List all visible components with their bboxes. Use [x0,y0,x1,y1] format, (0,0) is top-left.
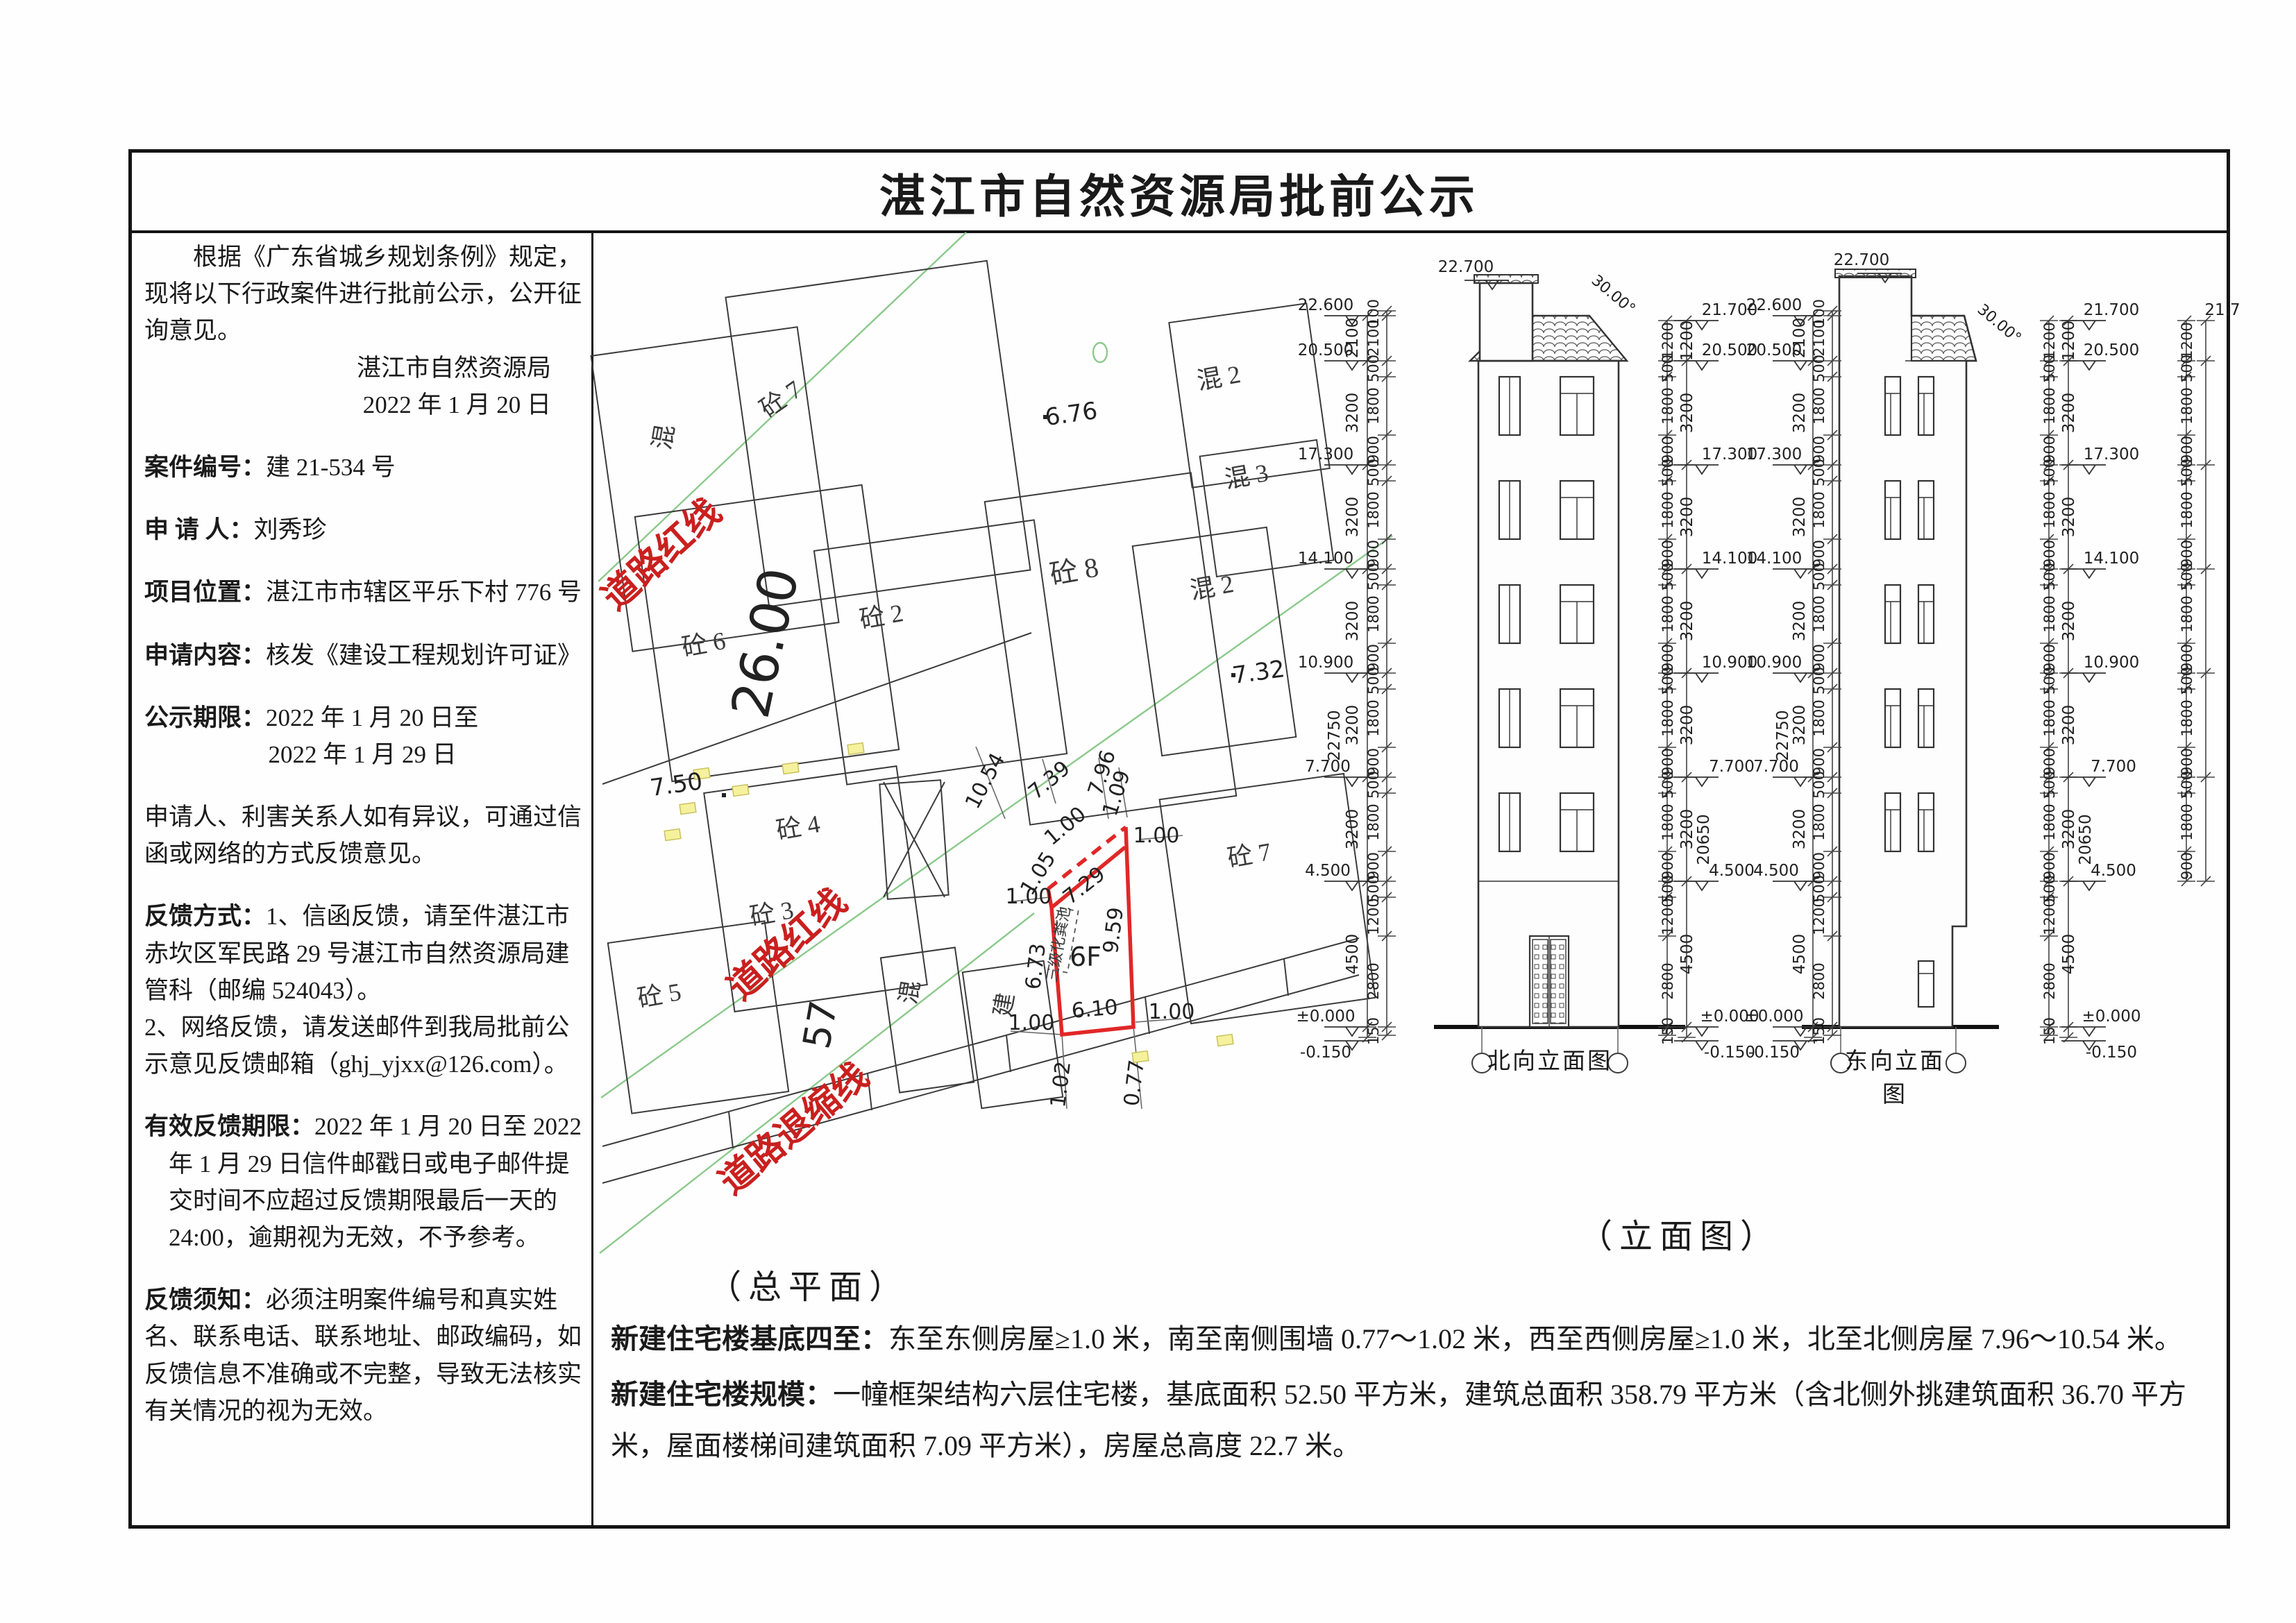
drawing-text: 4500 [1678,934,1696,975]
drawing-text: 4500 [1344,934,1362,975]
drawing-text: 2100 [1791,318,1809,359]
drawing-text: 7.32 [1231,655,1287,690]
site-plan-caption: （总平面） [708,1259,902,1308]
drawing-text: 2800 [1365,962,1382,999]
window [1918,585,1934,643]
drawing-text: 10.900 [1746,654,1802,672]
drawing-text: 3200 [2060,705,2078,746]
drawing-text: 500 [1660,667,1676,695]
north-stair-bulkhead [1480,283,1533,361]
drawing-text: 1800 [1365,804,1382,840]
drawing-text: 7.39 [1024,756,1075,805]
drawing-text: 2800 [2041,962,2058,999]
drawing-text: 砼 5 [635,978,683,1012]
drawing-text: 500 [1365,771,1382,799]
east-elevation-caption: 东向立面图 [1837,1042,1953,1109]
drawing-text: 500 [2041,459,2058,486]
drawing-text: 30.00° [1588,272,1639,318]
drawing-text: 1800 [1811,699,1827,736]
drawing-text: 150 [1365,1017,1382,1045]
lamp-marker [732,785,749,797]
drawing-text: 21.7 [2204,301,2240,319]
drawing-text: 1200 [1365,898,1382,935]
footprint-label: 新建住宅楼基底四至： [611,1323,888,1354]
drawing-text: 混 [895,978,925,1006]
drawing-text: 3200 [2060,393,2078,434]
drawing-text: 7.700 [2091,758,2136,776]
drawing-text: 500 [2041,667,2058,695]
drawing-text: 1800 [1811,491,1827,528]
drawing-text: 3200 [1791,497,1809,538]
drawing-text: 3200 [1678,705,1696,746]
level-marker [1324,777,1369,786]
notice-sheet: 湛江市自然资源局批前公示 根据《广东省城乡规划条例》规定，现将以下行政案件进行批… [0,0,2296,1623]
drawing-text: 500 [1365,355,1382,382]
drawing-text: 26.00 [719,563,811,723]
drawing-text: 17.300 [1746,445,1802,464]
lamp-marker [664,829,681,841]
site-plan-linework [598,232,1392,1253]
drawing-text: 500 [2179,563,2195,590]
drawing-text: 砼 7 [755,375,807,423]
spot-dot [722,793,726,797]
drawing-text: 1800 [1660,804,1676,840]
drawing-text: 3200 [2060,601,2078,642]
drawing-text: 900 [2179,852,2195,880]
drawing-text: 1200 [2041,898,2058,935]
drawing-text: 砼 4 [774,810,822,844]
drawing-text: 500 [2179,667,2195,695]
drawing-text: 砼 2 [857,599,905,634]
drawing-text: 1200 [1660,322,1676,359]
window [1885,377,1900,435]
north-elevation [1434,275,1685,1073]
drawing-text: 1800 [2041,804,2058,840]
drawing-text: 2800 [1660,962,1676,999]
drawing-text: 14.100 [1746,550,1802,568]
footprint-text: 东至东侧房屋≥1.0 米，南至南侧围墙 0.77～1.02 米，西至西侧房屋≥1… [888,1323,2182,1354]
drawing-text: 1800 [2179,595,2195,632]
drawing-text: 14.100 [1298,550,1353,568]
drawing-text: 500 [2041,771,2058,799]
drawing-text: 4500 [1791,934,1809,975]
drawing-text: 500 [1811,459,1827,486]
lamp-marker [847,743,864,755]
window [1885,793,1900,851]
level-marker [1324,465,1369,474]
window [1918,481,1934,539]
window [1918,689,1934,747]
lamp-marker [679,803,696,815]
drawing-text: 1800 [2041,699,2058,736]
drawing-text: 3200 [1344,705,1362,746]
drawing-text: 1.00 [1040,802,1091,851]
drawing-text: 1800 [1811,804,1827,840]
drawing-text: 4500 [2060,934,2078,975]
drawing-text: 混 2 [1195,360,1242,395]
drawing-text: 3200 [1344,393,1362,434]
plan-line [1284,959,1288,996]
drawing-text: 3200 [1791,809,1809,850]
level-marker [1324,569,1369,578]
drawing-text: 1800 [1660,387,1676,424]
drawing-text: 1800 [1365,699,1382,736]
bottom-notes: 新建住宅楼基底四至：东至东侧房屋≥1.0 米，南至南侧围墙 0.77～1.02 … [611,1314,2215,1472]
drawing-text: 22750 [1326,710,1344,760]
drawing-text: 10.900 [2084,654,2139,672]
level-marker [1674,777,1719,786]
window [1918,961,1934,1007]
drawing-text: 150 [2041,1017,2058,1045]
drawing-text: 0.77 [1120,1059,1149,1108]
elevation-caption: （立面图） [1576,1209,1784,1257]
drawing-text: 500 [2179,459,2195,486]
drawing-text: 17.300 [2084,445,2139,464]
drawing-text: 3200 [1678,809,1696,850]
drawing-text: 1800 [1660,699,1676,736]
scale-label: 新建住宅楼规模： [611,1379,833,1410]
window [1885,481,1900,539]
drawing-text: 1.00 [1006,885,1052,909]
drawing-text: 砼 7 [1225,838,1273,872]
drawing-text: 500 [1660,771,1676,799]
drawing-text: 砼 8 [1047,551,1101,590]
drawing-text: 1.00 [1008,1011,1055,1035]
level-marker [1674,673,1719,682]
drawing-text: 3200 [1791,393,1809,434]
drawing-text: 1.02 [1046,1060,1076,1110]
scale-note: 新建住宅楼规模：一幢框架结构六层住宅楼，基底面积 52.50 平方米，建筑总面积… [611,1369,2215,1472]
drawing-text: 500 [1365,459,1382,486]
drawing-text: 6F [1070,942,1101,972]
drawing-text: 混 3 [1222,459,1270,493]
drawing-text: 4.500 [1305,862,1351,880]
drawing-text: 道路红线 [595,491,729,618]
drawing-text: 1800 [1811,595,1827,632]
drawing-text: 500 [1660,563,1676,590]
drawing-text: 1800 [1660,595,1676,632]
drawing-text: 22.700 [1438,258,1494,276]
drawing-text: 14.100 [2084,550,2139,568]
drawing-text: 3200 [1678,497,1696,538]
scale-text: 一幢框架结构六层住宅楼，基底面积 52.50 平方米，建筑总面积 358.79 … [611,1379,2186,1461]
drawing-text: 22.700 [1834,251,1889,269]
drawing-text: 3200 [1344,809,1362,850]
drawing-text: -0.150 [2086,1044,2137,1062]
drawing-text: 20.500 [2084,341,2139,359]
drawing-text: 1800 [1365,595,1382,632]
parcel-outline [1160,774,1376,1023]
level-marker [1324,1027,1369,1036]
drawing-text: 4.500 [1753,862,1799,880]
drawing-text: 20650 [1695,814,1713,865]
drawing-text: 500 [1811,355,1827,382]
drawing-text: 1800 [2041,491,2058,528]
parcel-outline [881,947,974,1092]
plan-line [729,1112,733,1148]
drawing-text: 22.600 [1298,296,1353,314]
drawing-text: 2100 [1344,318,1362,359]
entrance-door [1530,936,1569,1027]
drawing-text: 1.00 [1133,824,1180,848]
east-roof [1911,316,1976,361]
drawing-text: 1200 [2041,322,2058,359]
drawing-text: 三级化粪池 [1043,905,1074,983]
drawing-text: 3200 [2060,497,2078,538]
drawing-text: 500 [2179,355,2195,382]
lamp-marker [782,763,799,774]
drawing-text: 7.700 [1709,758,1755,776]
north-elevation-caption: 北向立面图 [1487,1042,1613,1076]
drawing-text: 500 [1365,563,1382,590]
drawing-text: 混 2 [1188,570,1235,604]
drawing-text: 6.76 [1043,397,1099,432]
level-marker [1674,361,1719,370]
drawing-text: 2800 [1811,962,1827,999]
drawing-text: 1800 [2179,491,2195,528]
drawing-text: 1200 [1811,898,1827,935]
window [1885,585,1900,643]
drawing-text: 10.900 [1298,654,1353,672]
drawing-text: 57 [795,997,846,1052]
drawing-text: 1800 [2179,804,2195,840]
plan-line [602,975,1359,1183]
drawing-text: 砼 6 [679,627,727,661]
drawing-text: 500 [1660,355,1676,382]
east-facade [1839,276,1976,1027]
drawing-text: 500 [1365,667,1382,695]
drawing-text: 21.700 [2084,301,2139,319]
drawing-text: 6.10 [1070,995,1119,1023]
drawing-text: 7.50 [648,767,704,802]
drawing-text: 1.00 [1149,1000,1195,1024]
drawing-text: 30.00° [1974,301,2025,348]
window [1918,793,1934,851]
drawing-text: 1800 [2041,595,2058,632]
parcel-outline [726,261,1031,607]
drawing-text: 150 [1660,1017,1676,1045]
drawing-text: 1800 [1811,387,1827,424]
drawing-text: 3200 [2060,809,2078,850]
drawing-text: 道路退缩线 [712,1055,876,1203]
drawing-text: 150 [1811,1017,1827,1045]
plan-line [1006,1035,1011,1072]
drawing-text: -0.150 [1748,1044,1800,1062]
drawing-text: 1800 [1660,491,1676,528]
drawing-text: 500 [1811,563,1827,590]
site-plan-parcels [591,261,1376,1114]
drawing-text: 22.600 [1746,296,1802,314]
east-elevation [1802,269,1999,1073]
window [1885,689,1900,747]
drawing-text: 500 [1811,771,1827,799]
drawing-text: 500 [2041,355,2058,382]
drawing-text: 10.54 [961,749,1010,813]
drawing-text: 3200 [1678,393,1696,434]
lamp-marker [1217,1035,1233,1046]
drawing-text: 3200 [1344,601,1362,642]
drawing-text: 1200 [1678,321,1696,362]
drawing-text: 2100 [1811,319,1827,356]
drawing-text: 3200 [1344,497,1362,538]
drawing-text: 500 [1811,667,1827,695]
drawing-text: 1200 [2060,321,2078,362]
drawing-text: 3200 [1678,601,1696,642]
drawing-text: 1200 [1660,898,1676,935]
level-marker [1674,881,1719,890]
drawing-text: 17.300 [1298,445,1353,464]
drawing-text: 4.500 [1709,862,1755,880]
drawing-text: ±0.000 [1744,1008,1803,1026]
level-marker [1324,673,1369,682]
drawing-text: 1800 [2179,387,2195,424]
drawing-text: 7.29 [1058,862,1110,910]
drawing-text: 2100 [1365,319,1382,356]
drawing-text: -0.150 [1300,1044,1351,1062]
drawing-text: 1800 [1365,387,1382,424]
drawing-text: 500 [1660,459,1676,486]
drawing-text: 22750 [1774,710,1792,760]
drawing-text: 500 [2179,771,2195,799]
drawing-text: 500 [2041,563,2058,590]
drawing-annotations: 道路红线道路红线道路退缩线混砼 7砼 6砼 2砼 8混 2混 3混 2砼 4砼 … [595,251,2240,1203]
drawing-text: 3200 [1791,601,1809,642]
drawing-text: 1200 [2179,322,2195,359]
drawing-text: 20650 [2077,814,2095,865]
site-plan-tree-symbol [1093,343,1107,362]
window [1918,377,1934,435]
drawing-text: 9.59 [1099,906,1129,955]
level-marker [1674,569,1719,578]
drawing-text: 1800 [1365,491,1382,528]
drawing-text: 1800 [2041,387,2058,424]
footprint-note: 新建住宅楼基底四至：东至东侧房屋≥1.0 米，南至南侧围墙 0.77～1.02 … [611,1314,2215,1365]
drawing-text: 3200 [1791,705,1809,746]
drawing-text: 混 [648,423,679,452]
drawing-text: 4.500 [2091,862,2136,880]
level-marker [1324,881,1369,890]
drawing-text: ±0.000 [2082,1008,2141,1026]
drawing-text: 1800 [2179,699,2195,736]
level-marker [1674,465,1719,474]
drawing-text: ±0.000 [1296,1008,1355,1026]
level-marker [1324,361,1369,370]
